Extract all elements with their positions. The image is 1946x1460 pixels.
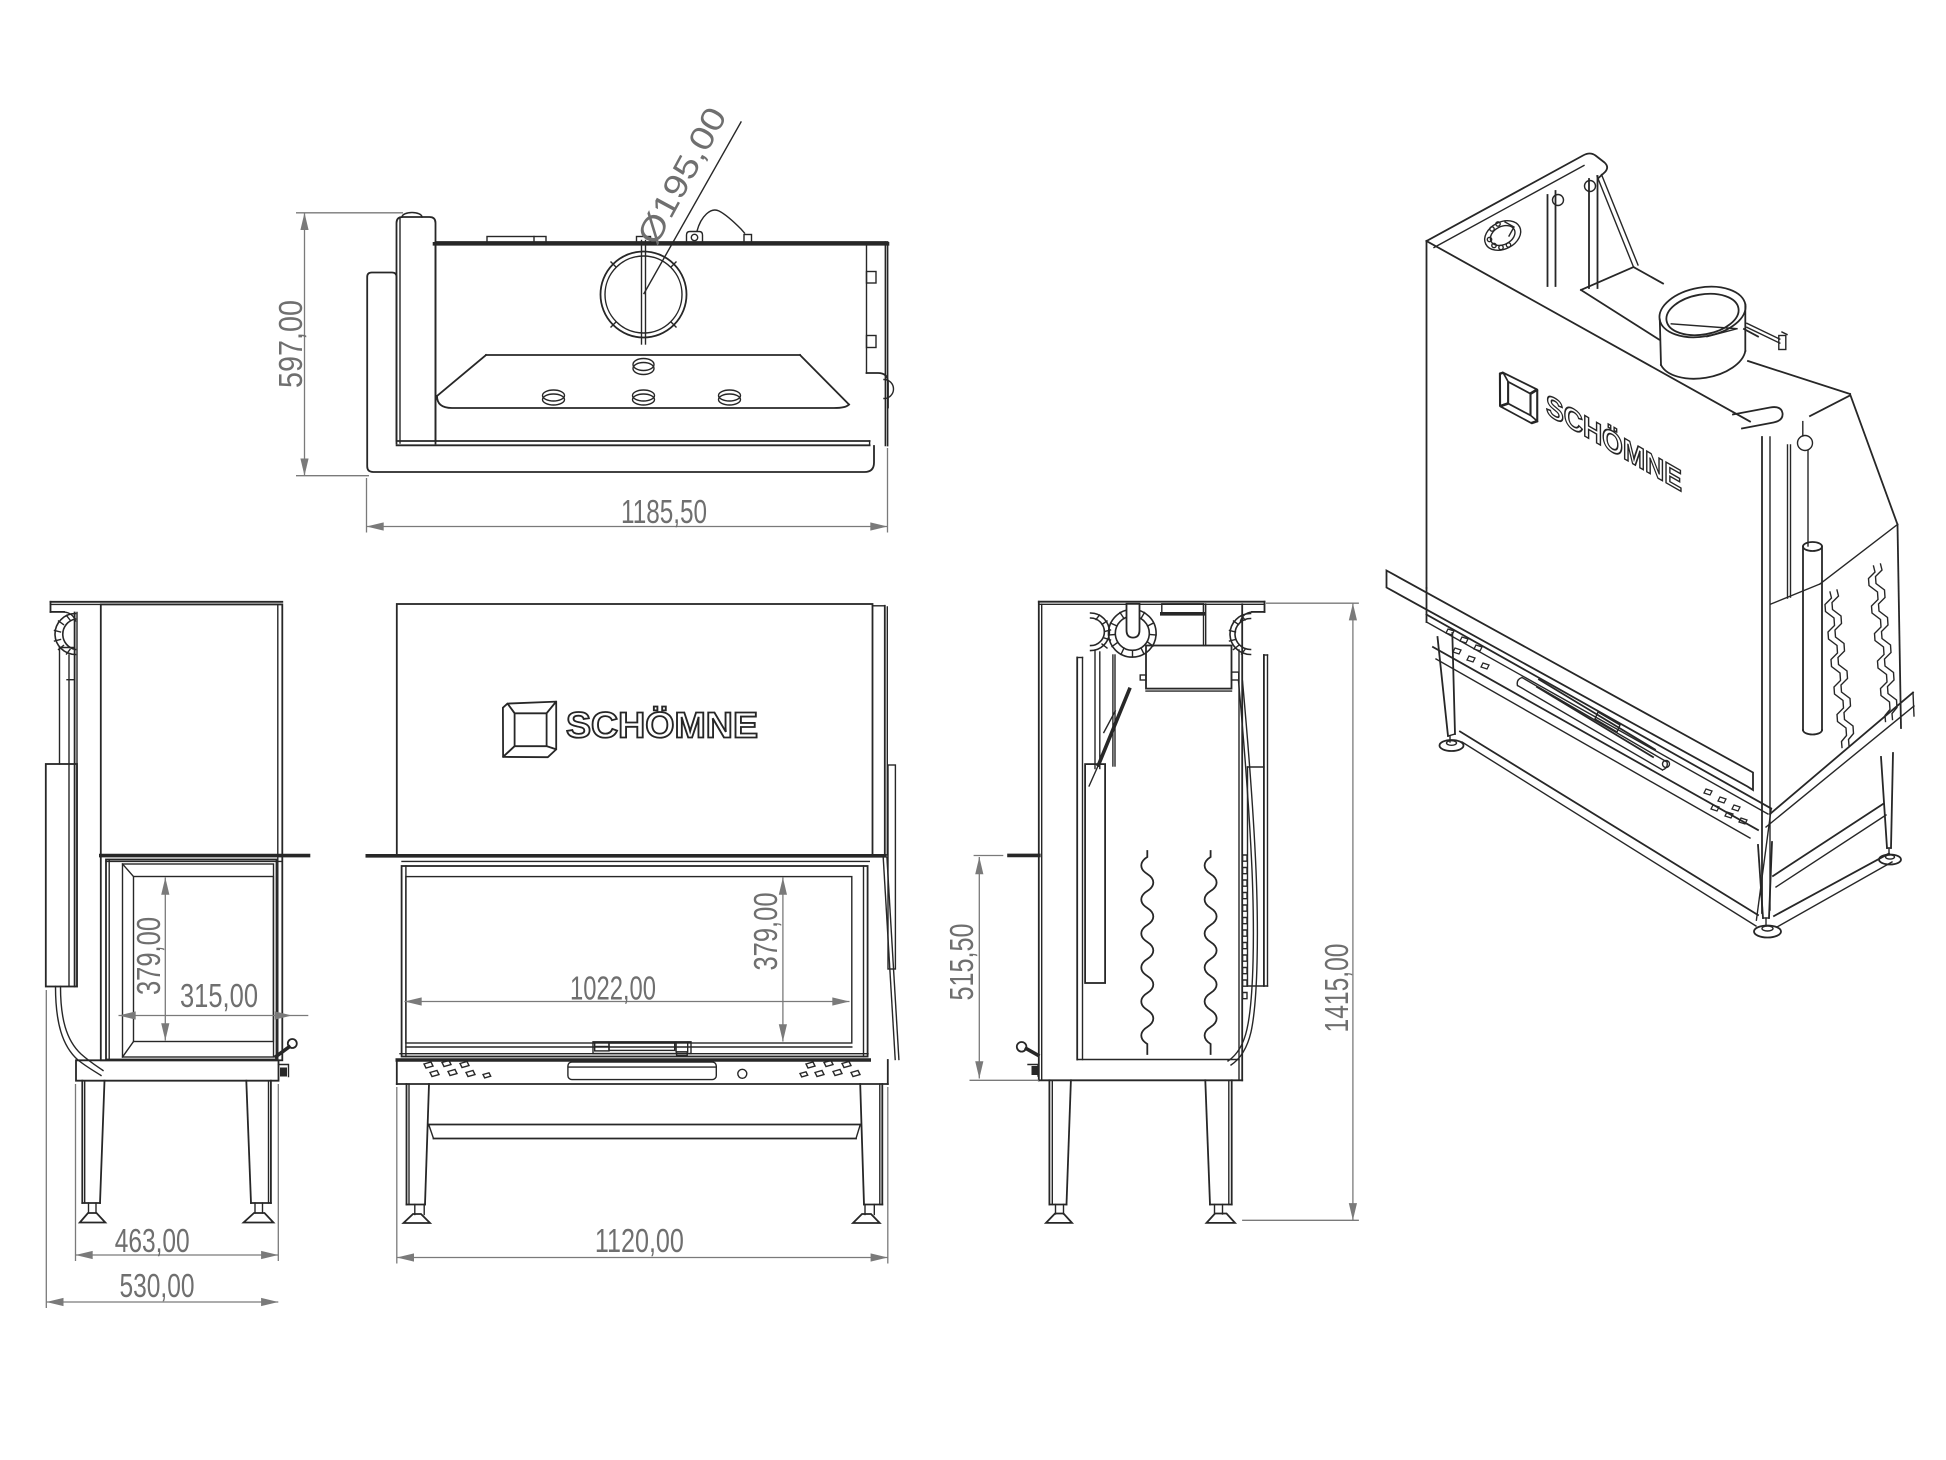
svg-text:315,00: 315,00 — [180, 977, 258, 1014]
svg-text:463,00: 463,00 — [115, 1222, 190, 1259]
svg-text:515,50: 515,50 — [943, 924, 980, 1001]
svg-text:530,00: 530,00 — [120, 1267, 195, 1304]
svg-text:379,00: 379,00 — [747, 893, 784, 971]
svg-text:1120,00: 1120,00 — [595, 1222, 684, 1259]
svg-text:SCHÖMNE: SCHÖMNE — [566, 705, 758, 746]
svg-text:1185,50: 1185,50 — [621, 493, 707, 530]
svg-text:597,00: 597,00 — [272, 300, 309, 388]
svg-text:379,00: 379,00 — [130, 917, 167, 995]
svg-text:1022,00: 1022,00 — [570, 970, 656, 1007]
svg-text:1415,00: 1415,00 — [1318, 944, 1355, 1033]
